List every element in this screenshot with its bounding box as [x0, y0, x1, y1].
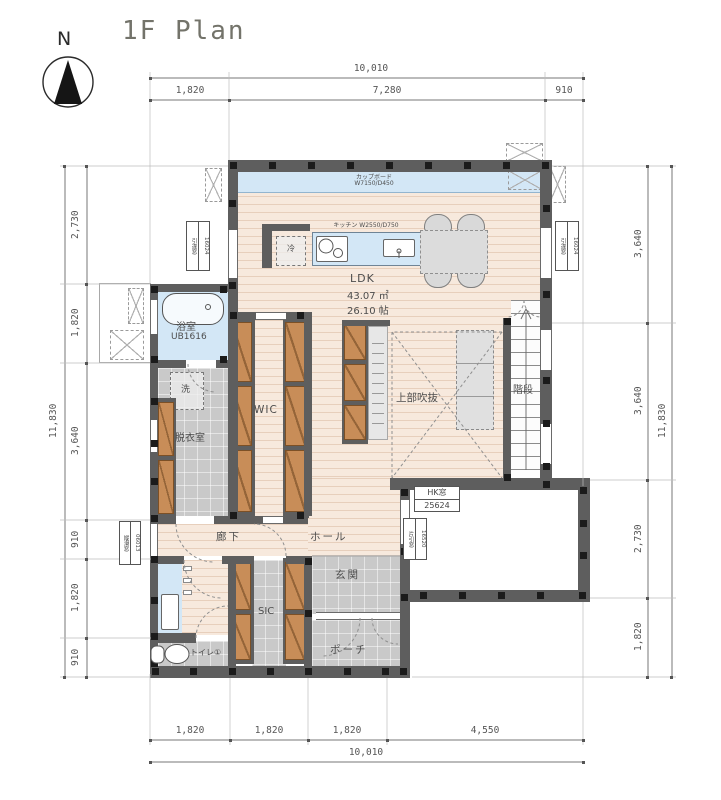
- window: [150, 300, 158, 334]
- wall: [216, 360, 238, 368]
- dim-top-seg: 7,280: [352, 85, 422, 96]
- bath-unit-label: UB1616: [171, 332, 207, 342]
- wall: [158, 633, 196, 643]
- wall: [150, 666, 410, 678]
- entrance-floor: [312, 556, 400, 614]
- hall-window-tag: 片引窓16520: [403, 518, 427, 560]
- wall: [304, 556, 312, 666]
- corridor-label: 廊下: [216, 529, 241, 544]
- sliding-door: [256, 312, 286, 320]
- dim-right-seg: 3,640: [633, 209, 646, 279]
- towel-rack: [183, 566, 192, 571]
- toilet-label: トイレ①: [190, 647, 221, 658]
- north-label: N: [57, 28, 71, 50]
- dressing-cabinet: [158, 402, 174, 456]
- wall: [158, 556, 184, 564]
- wall: [222, 556, 254, 564]
- window: [150, 524, 158, 558]
- window: [540, 424, 552, 464]
- window-tag-name: 引違窓: [187, 222, 199, 270]
- tv-board: [456, 330, 494, 430]
- wall: [238, 312, 256, 320]
- entry-window-tag-name: HK窓: [415, 487, 459, 500]
- dim-bottom-seg: 4,550: [450, 725, 520, 736]
- wall: [228, 160, 238, 520]
- wall: [286, 556, 306, 564]
- dim-right-seg: 1,820: [633, 602, 646, 672]
- ldk-label: LDK: [350, 272, 375, 285]
- entry-window-tag-code: 25624: [415, 500, 459, 512]
- dim-left-seg: 2,730: [70, 190, 83, 260]
- stairs-label: 階段: [513, 381, 533, 396]
- entrance-door: [316, 612, 400, 620]
- sic-label: SIC: [258, 606, 274, 617]
- window-tag-name: 引違窓: [556, 222, 568, 270]
- dim-top-seg: 1,820: [160, 85, 220, 96]
- washer-label: 洗: [181, 382, 190, 395]
- window-tag-code: 16520: [416, 519, 427, 559]
- high-window-mark: [508, 170, 542, 190]
- wall: [304, 312, 312, 516]
- entry-window-tag: HK窓 25624: [414, 486, 460, 512]
- ldk-area-jo: 26.10 帖: [347, 302, 389, 317]
- window: [540, 228, 552, 278]
- wall: [228, 556, 236, 666]
- dim-bottom-total: 10,010: [331, 747, 401, 758]
- wic-closet: [285, 386, 306, 446]
- towel-rack: [183, 590, 192, 595]
- dining-table: [420, 230, 488, 274]
- wall: [228, 160, 552, 172]
- dim-top-total: 10,010: [336, 63, 406, 74]
- fridge-alcove-wall: [262, 224, 310, 231]
- sic-shelf: [285, 562, 305, 610]
- bath-label: 浴室: [176, 318, 196, 333]
- cupboard-size-label: W7150/D450: [324, 180, 424, 187]
- dim-top-seg: 910: [534, 85, 594, 96]
- wall: [503, 318, 511, 490]
- wall: [214, 516, 263, 524]
- hall-label: ホール: [310, 529, 348, 544]
- dressing-cabinet: [158, 460, 174, 514]
- cooktop: [316, 236, 348, 262]
- equipment-unit: [128, 288, 144, 324]
- void-label: 上部吹抜: [396, 390, 438, 405]
- window-tag-ne: 引違窓16024: [555, 221, 579, 271]
- sic-shelf: [285, 614, 305, 660]
- window: [228, 230, 238, 278]
- window-tag-name: 片引窓: [404, 519, 416, 559]
- kitchen-sink: [383, 239, 415, 257]
- hall-closet: [344, 364, 366, 401]
- dim-left-seg: 1,820: [70, 288, 83, 358]
- window-tag-code: 16024: [199, 222, 210, 270]
- wic-label: WIC: [254, 404, 278, 416]
- porch-label: ポーチ: [330, 642, 368, 657]
- sliding-door: [263, 516, 283, 524]
- eaves-mark: [205, 168, 222, 202]
- dim-right-total: 11,830: [657, 386, 670, 456]
- dim-right-seg: 2,730: [633, 504, 646, 574]
- kitchen-label: キッチン W2550/D750: [318, 220, 414, 229]
- wall: [400, 602, 410, 666]
- wic-closet: [285, 322, 306, 382]
- dim-right-seg: 3,640: [633, 366, 646, 436]
- wall: [400, 590, 590, 602]
- ldk-area-m2: 43.07 ㎡: [347, 287, 389, 302]
- floor-plan-canvas: 1F Plan N: [0, 0, 721, 800]
- window-tag-nw: 引違窓16024: [186, 221, 210, 271]
- vanity-sink: [161, 594, 179, 630]
- hall-closet: [344, 324, 366, 360]
- dressing-label: 脱衣室: [175, 429, 205, 444]
- ladder-rungs: [372, 334, 384, 432]
- entrance-label: 玄関: [335, 567, 360, 582]
- window: [540, 330, 552, 370]
- towel-rack: [183, 578, 192, 583]
- dim-bottom-seg: 1,820: [317, 725, 377, 736]
- wall: [150, 360, 186, 368]
- dim-left-seg: 910: [70, 622, 83, 692]
- page-title: 1F Plan: [122, 16, 246, 46]
- window: [150, 420, 158, 452]
- window-tag-code: 06013: [131, 522, 141, 564]
- dim-left-total: 11,830: [48, 386, 61, 456]
- wash-window-tag: 縦滑窓06013: [119, 521, 141, 565]
- compass-icon: [43, 57, 93, 107]
- wall: [343, 320, 390, 326]
- wall: [150, 284, 158, 674]
- equipment-unit: [110, 330, 144, 360]
- fridge-label: 冷: [276, 243, 306, 254]
- wall: [283, 516, 308, 524]
- hall-closet: [344, 405, 366, 440]
- dim-bottom-seg: 1,820: [239, 725, 299, 736]
- dim-bottom-seg: 1,820: [160, 725, 220, 736]
- wall: [150, 284, 238, 292]
- wall: [158, 516, 176, 524]
- window-tag-name: 縦滑窓: [120, 522, 131, 564]
- dim-left-seg: 3,640: [70, 406, 83, 476]
- window-tag-code: 16024: [568, 222, 579, 270]
- wall: [578, 486, 590, 602]
- hall-floor: [308, 478, 400, 556]
- wic-closet: [285, 450, 306, 512]
